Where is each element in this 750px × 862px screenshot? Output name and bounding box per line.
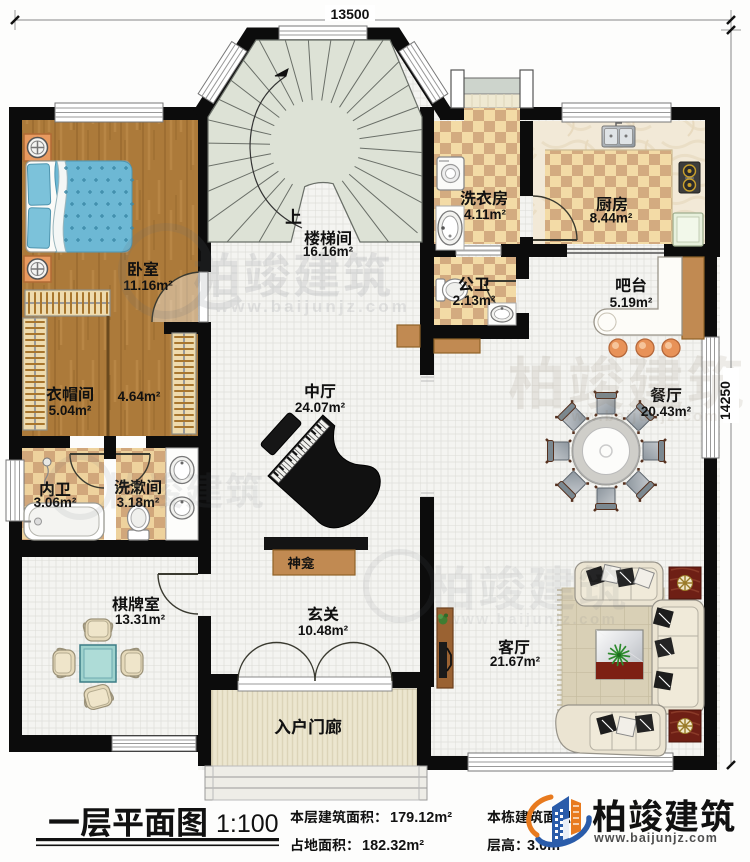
- svg-text:10.48m²: 10.48m²: [298, 623, 349, 638]
- svg-text:www.baijunjz.com: www.baijunjz.com: [593, 831, 718, 845]
- svg-text:13500: 13500: [331, 6, 370, 22]
- svg-text:www.baijunjz.com: www.baijunjz.com: [447, 611, 617, 628]
- svg-text:21.67m²: 21.67m²: [490, 654, 541, 669]
- svg-text:4.64m²: 4.64m²: [118, 389, 161, 404]
- svg-text:1:100: 1:100: [216, 810, 279, 838]
- svg-text:5.04m²: 5.04m²: [49, 403, 92, 418]
- svg-text:5.19m²: 5.19m²: [610, 295, 653, 310]
- svg-text:14250: 14250: [717, 381, 733, 420]
- svg-text:8.44m²: 8.44m²: [590, 211, 633, 226]
- svg-text:13.31m²: 13.31m²: [115, 612, 166, 627]
- svg-text:2.13m²: 2.13m²: [453, 293, 496, 308]
- svg-text:182.32m²: 182.32m²: [362, 838, 424, 854]
- svg-text:www.baijunjz.com: www.baijunjz.com: [557, 408, 719, 425]
- svg-text:179.12m²: 179.12m²: [390, 810, 452, 826]
- svg-text:24.07m²: 24.07m²: [295, 400, 346, 415]
- svg-text:www.baijunjz.com: www.baijunjz.com: [214, 297, 410, 316]
- svg-text:4.11m²: 4.11m²: [464, 207, 507, 222]
